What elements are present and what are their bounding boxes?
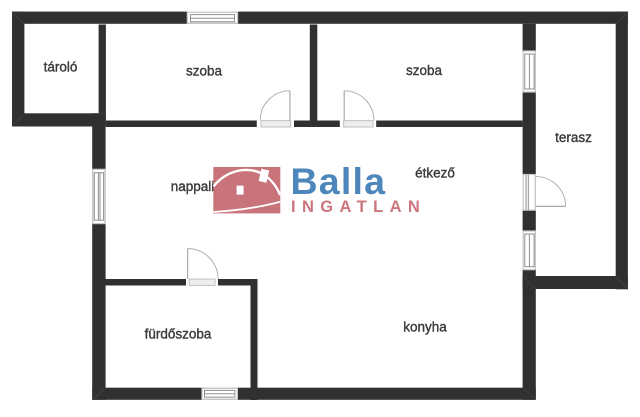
svg-text:tároló: tároló [44,60,78,75]
svg-text:fürdőszoba: fürdőszoba [145,327,212,342]
svg-text:szoba: szoba [186,64,223,79]
svg-text:konyha: konyha [403,319,447,334]
svg-text:Balla: Balla [291,160,387,202]
svg-text:szoba: szoba [406,63,443,78]
svg-text:nappali: nappali [171,179,215,194]
svg-text:INGATLAN: INGATLAN [291,198,426,216]
svg-text:terasz: terasz [555,130,592,145]
svg-text:étkező: étkező [415,166,455,181]
